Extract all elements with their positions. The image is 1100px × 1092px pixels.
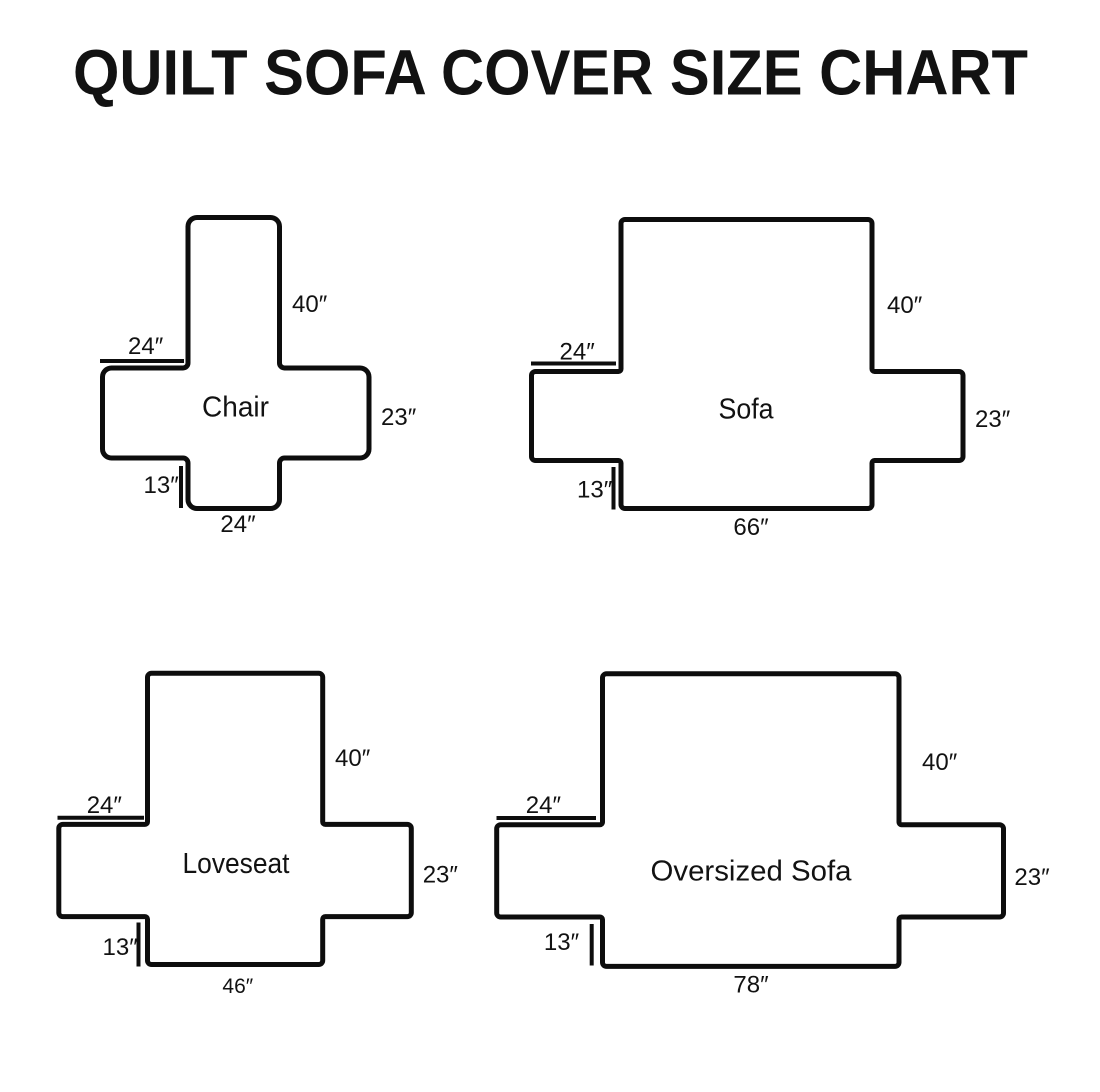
svg-text:13″: 13″ xyxy=(103,934,139,961)
svg-text:24″: 24″ xyxy=(560,339,596,366)
svg-text:Loveseat: Loveseat xyxy=(183,848,290,880)
svg-text:13″: 13″ xyxy=(144,472,180,499)
svg-text:24″: 24″ xyxy=(87,792,123,819)
svg-text:13″: 13″ xyxy=(577,477,613,504)
svg-text:46″: 46″ xyxy=(222,975,253,998)
svg-text:QUILT SOFA COVER SIZE CHART: QUILT SOFA COVER SIZE CHART xyxy=(73,37,1028,109)
svg-text:40″: 40″ xyxy=(292,291,328,318)
svg-text:23″: 23″ xyxy=(423,862,459,889)
svg-text:24″: 24″ xyxy=(526,792,562,819)
svg-text:40″: 40″ xyxy=(335,745,371,772)
svg-text:23″: 23″ xyxy=(381,404,417,431)
svg-text:40″: 40″ xyxy=(922,749,958,776)
svg-text:24″: 24″ xyxy=(220,511,256,538)
svg-text:13″: 13″ xyxy=(544,929,580,956)
svg-text:24″: 24″ xyxy=(128,333,164,360)
svg-text:66″: 66″ xyxy=(733,514,769,541)
svg-text:40″: 40″ xyxy=(887,292,923,319)
svg-text:23″: 23″ xyxy=(975,406,1011,433)
svg-text:23″: 23″ xyxy=(1014,864,1050,891)
svg-text:Oversized Sofa: Oversized Sofa xyxy=(651,856,853,888)
svg-text:Chair: Chair xyxy=(202,392,269,424)
svg-text:78″: 78″ xyxy=(733,972,769,999)
svg-text:Sofa: Sofa xyxy=(719,394,775,426)
